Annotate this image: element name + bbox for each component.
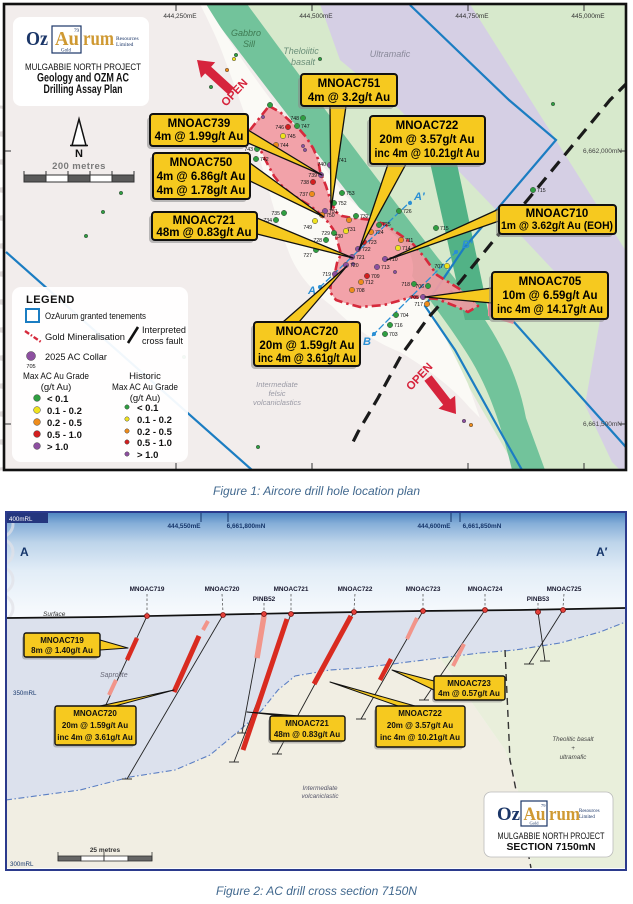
svg-text:Theolitic basalt: Theolitic basalt	[552, 736, 594, 743]
svg-text:741: 741	[338, 158, 347, 164]
svg-text:732: 732	[360, 214, 369, 220]
svg-text:4m @ 3.2g/t Au: 4m @ 3.2g/t Au	[308, 92, 390, 104]
svg-text:79: 79	[541, 803, 546, 808]
svg-text:MNOAC724: MNOAC724	[468, 586, 503, 593]
svg-text:Max AC Au Grade: Max AC Au Grade	[23, 371, 89, 382]
svg-text:< 0.1: < 0.1	[137, 403, 159, 414]
svg-text:Oz: Oz	[26, 28, 48, 50]
svg-text:444,750mE: 444,750mE	[455, 13, 489, 20]
svg-text:Interpreted: Interpreted	[142, 325, 186, 336]
svg-text:Resources: Resources	[579, 809, 600, 814]
svg-text:Limited: Limited	[116, 42, 134, 48]
svg-text:MNOAC721: MNOAC721	[274, 586, 309, 593]
svg-text:444,500mE: 444,500mE	[299, 13, 333, 20]
svg-text:inc 4m @ 14.17g/t Au: inc 4m @ 14.17g/t Au	[497, 304, 603, 316]
svg-text:20m @ 3.57g/t Au: 20m @ 3.57g/t Au	[387, 721, 453, 730]
svg-text:703: 703	[389, 332, 398, 338]
svg-text:(g/t Au): (g/t Au)	[41, 382, 72, 393]
svg-text:727: 727	[303, 253, 312, 259]
svg-text:B′: B′	[462, 239, 474, 251]
svg-text:6,661,800mN: 6,661,800mN	[227, 523, 266, 530]
svg-text:723: 723	[368, 240, 377, 246]
svg-text:1m @ 3.62g/t Au (EOH): 1m @ 3.62g/t Au (EOH)	[501, 220, 613, 232]
svg-text:MNOAC719: MNOAC719	[40, 636, 84, 645]
svg-text:746: 746	[275, 125, 284, 131]
svg-text:MNOAC722: MNOAC722	[396, 120, 459, 132]
svg-text:753: 753	[346, 191, 355, 197]
svg-text:716: 716	[394, 323, 403, 329]
svg-text:Gold: Gold	[61, 49, 72, 54]
svg-text:705: 705	[26, 364, 35, 370]
svg-text:711: 711	[405, 238, 413, 244]
svg-text:713: 713	[381, 265, 390, 271]
svg-text:712: 712	[365, 280, 374, 286]
svg-text:444,250mE: 444,250mE	[163, 13, 197, 20]
svg-text:MNOAC720: MNOAC720	[276, 326, 339, 338]
svg-text:4m @ 0.57g/t Au: 4m @ 0.57g/t Au	[438, 689, 500, 698]
svg-text:748: 748	[290, 116, 299, 122]
svg-text:Saprolite: Saprolite	[100, 672, 128, 679]
svg-text:300mRL: 300mRL	[10, 861, 34, 868]
svg-text:725: 725	[382, 222, 391, 228]
svg-text:Geology and OZM AC: Geology and OZM AC	[37, 73, 129, 85]
svg-text:740: 740	[317, 162, 326, 168]
svg-text:708: 708	[356, 288, 365, 294]
svg-text:MNOAC710: MNOAC710	[526, 208, 589, 220]
svg-text:Sill: Sill	[243, 39, 256, 49]
svg-text:MNOAC723: MNOAC723	[447, 679, 491, 688]
svg-text:745: 745	[287, 134, 296, 140]
svg-text:inc 4m @ 10.21g/t Au: inc 4m @ 10.21g/t Au	[380, 733, 460, 742]
svg-text:20m @ 3.57g/t Au: 20m @ 3.57g/t Au	[379, 134, 474, 146]
svg-text:Oz: Oz	[497, 805, 520, 825]
svg-text:400mRL: 400mRL	[9, 516, 33, 523]
svg-text:25 metres: 25 metres	[90, 847, 121, 854]
svg-text:707: 707	[434, 264, 443, 270]
svg-text:cross fault: cross fault	[142, 336, 183, 347]
svg-text:729: 729	[321, 231, 330, 237]
svg-text:PINB53: PINB53	[527, 596, 550, 603]
svg-text:744: 744	[280, 143, 289, 149]
svg-text:6,661,500mN: 6,661,500mN	[583, 421, 622, 428]
svg-text:0.5 - 1.0: 0.5 - 1.0	[47, 430, 82, 441]
svg-text:79: 79	[74, 29, 80, 34]
svg-text:Gold Mineralisation: Gold Mineralisation	[45, 332, 125, 343]
svg-text:SECTION 7150mN: SECTION 7150mN	[507, 842, 596, 853]
svg-text:0.2 - 0.5: 0.2 - 0.5	[137, 427, 173, 438]
svg-text:Drilling Assay Plan: Drilling Assay Plan	[44, 84, 123, 96]
svg-text:MNOAC720: MNOAC720	[205, 586, 240, 593]
svg-text:750: 750	[326, 213, 335, 219]
svg-text:< 0.1: < 0.1	[47, 394, 69, 405]
svg-text:inc 4m @ 3.61g/t Au: inc 4m @ 3.61g/t Au	[258, 353, 356, 365]
svg-text:445,000mE: 445,000mE	[571, 13, 605, 20]
svg-text:MNOAC705: MNOAC705	[519, 276, 582, 288]
svg-text:444,600mE: 444,600mE	[417, 523, 451, 530]
svg-text:A′: A′	[596, 545, 608, 559]
svg-text:MNOAC751: MNOAC751	[318, 78, 381, 90]
svg-text:200 metres: 200 metres	[52, 161, 106, 172]
svg-text:722: 722	[362, 247, 371, 253]
svg-text:0.1 - 0.2: 0.1 - 0.2	[47, 406, 82, 417]
svg-text:MNOAC725: MNOAC725	[547, 586, 582, 593]
svg-text:Gold: Gold	[530, 821, 540, 826]
svg-text:2025 AC Collar: 2025 AC Collar	[45, 352, 107, 363]
svg-text:0.5 - 1.0: 0.5 - 1.0	[137, 438, 172, 449]
svg-text:Theloiitic: Theloiitic	[283, 46, 319, 56]
svg-text:MNOAC720: MNOAC720	[73, 709, 117, 718]
svg-text:MULGABBIE NORTH PROJECT: MULGABBIE NORTH PROJECT	[25, 62, 141, 73]
svg-text:715: 715	[440, 226, 449, 232]
svg-text:737: 737	[299, 192, 308, 198]
svg-text:749: 749	[303, 225, 312, 231]
svg-text:730: 730	[334, 234, 343, 240]
svg-text:MULGABBIE NORTH PROJECT: MULGABBIE NORTH PROJECT	[498, 831, 606, 841]
svg-text:726: 726	[403, 209, 412, 215]
svg-text:ultramafic: ultramafic	[560, 754, 588, 761]
svg-text:LEGEND: LEGEND	[26, 294, 75, 306]
svg-text:Max AC Au Grade: Max AC Au Grade	[112, 382, 178, 393]
svg-text:MNOAC722: MNOAC722	[338, 586, 373, 593]
svg-text:742: 742	[260, 157, 269, 163]
svg-text:10m @ 6.59g/t Au: 10m @ 6.59g/t Au	[502, 290, 597, 302]
svg-text:444,550mE: 444,550mE	[167, 523, 201, 530]
svg-text:738: 738	[300, 180, 309, 186]
svg-text:48m @ 0.83g/t Au: 48m @ 0.83g/t Au	[274, 730, 340, 739]
svg-text:8m @ 1.40g/t Au: 8m @ 1.40g/t Au	[31, 646, 93, 655]
svg-text:6,662,000mN: 6,662,000mN	[583, 148, 622, 155]
svg-text:20m @ 1.59g/t Au: 20m @ 1.59g/t Au	[259, 340, 354, 352]
svg-text:inc 4m @ 10.21g/t Au: inc 4m @ 10.21g/t Au	[375, 148, 480, 160]
svg-text:705: 705	[410, 295, 419, 301]
svg-text:rum: rum	[549, 805, 581, 825]
svg-text:Gabbro: Gabbro	[231, 28, 261, 38]
svg-text:volcaniclastics: volcaniclastics	[253, 398, 301, 407]
svg-text:4m @ 1.99g/t Au: 4m @ 1.99g/t Au	[155, 131, 244, 143]
svg-text:4m @ 6.86g/t Au: 4m @ 6.86g/t Au	[157, 171, 246, 183]
svg-text:4m @ 1.78g/t Au: 4m @ 1.78g/t Au	[157, 185, 246, 197]
svg-text:Ultramafic: Ultramafic	[370, 49, 411, 59]
svg-text:717: 717	[414, 302, 423, 308]
svg-text:Limited: Limited	[579, 815, 595, 820]
svg-text:Historic: Historic	[129, 371, 161, 382]
svg-text:0.2 - 0.5: 0.2 - 0.5	[47, 418, 83, 429]
svg-text:6,661,850mN: 6,661,850mN	[463, 523, 502, 530]
svg-text:PINB52: PINB52	[253, 596, 276, 603]
svg-text:752: 752	[338, 201, 347, 207]
svg-text:MNOAC721: MNOAC721	[173, 215, 236, 227]
svg-text:inc 4m @ 3.61g/t Au: inc 4m @ 3.61g/t Au	[57, 733, 133, 742]
svg-text:felsic: felsic	[268, 389, 285, 398]
svg-text:720: 720	[350, 263, 359, 269]
svg-text:704: 704	[400, 313, 409, 319]
svg-text:basalt: basalt	[291, 57, 316, 67]
svg-text:MNOAC750: MNOAC750	[170, 157, 233, 169]
svg-text:MNOAC721: MNOAC721	[285, 719, 329, 728]
svg-text:747: 747	[301, 124, 310, 130]
svg-text:20m @ 1.59g/t Au: 20m @ 1.59g/t Au	[62, 721, 128, 730]
svg-text:> 1.0: > 1.0	[47, 442, 68, 453]
svg-text:N: N	[75, 148, 83, 160]
svg-text:> 1.0: > 1.0	[137, 450, 158, 461]
svg-text:350mRL: 350mRL	[13, 690, 37, 697]
svg-text:Intermediate: Intermediate	[256, 380, 298, 389]
svg-text:0.1 - 0.2: 0.1 - 0.2	[137, 415, 172, 426]
svg-text:MNOAC739: MNOAC739	[168, 118, 231, 130]
svg-text:A′: A′	[413, 191, 426, 203]
svg-text:+: +	[571, 745, 575, 752]
svg-text:MNOAC723: MNOAC723	[406, 586, 441, 593]
svg-text:volcaniclastic: volcaniclastic	[301, 793, 339, 800]
svg-text:735: 735	[271, 211, 280, 217]
svg-text:715: 715	[537, 188, 546, 194]
svg-text:MNOAC719: MNOAC719	[130, 586, 165, 593]
svg-text:B: B	[363, 336, 371, 348]
svg-text:Surface: Surface	[43, 611, 66, 618]
svg-text:719: 719	[322, 272, 331, 278]
svg-text:OzAurum granted tenements: OzAurum granted tenements	[45, 311, 146, 322]
svg-text:rum: rum	[83, 28, 114, 50]
svg-text:739: 739	[308, 173, 317, 179]
svg-text:721: 721	[356, 255, 365, 261]
svg-text:Intermediate: Intermediate	[302, 785, 337, 792]
svg-text:A: A	[20, 545, 29, 559]
svg-text:731: 731	[347, 227, 356, 233]
svg-text:706: 706	[415, 284, 424, 290]
svg-text:MNOAC722: MNOAC722	[398, 709, 442, 718]
svg-text:48m @ 0.83g/t Au: 48m @ 0.83g/t Au	[156, 227, 251, 239]
svg-text:718: 718	[401, 282, 410, 288]
svg-text:724: 724	[375, 230, 384, 236]
